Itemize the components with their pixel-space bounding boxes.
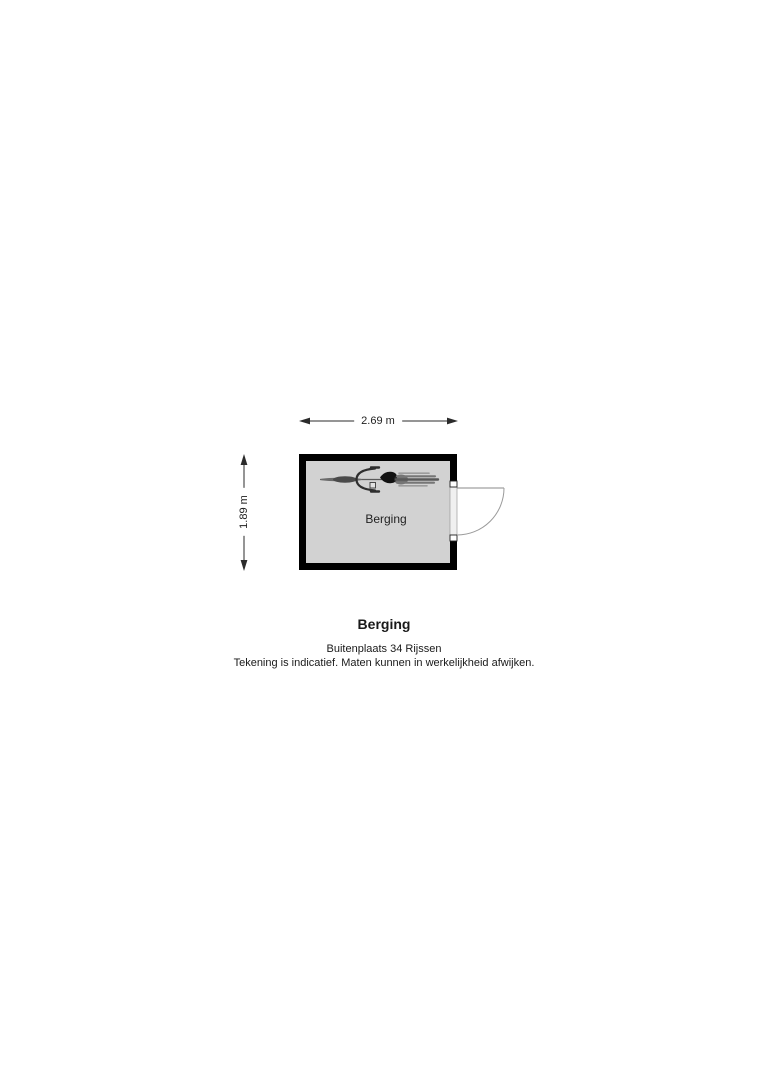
arrow-up-icon [241,454,248,465]
bicycle-pedal [370,483,376,489]
arrow-left-icon [299,418,310,425]
plan-address: Buitenplaats 34 Rijssen [0,642,768,656]
height-dimension-label: 1.89 m [237,488,251,536]
plan-title: Berging [0,616,768,633]
plan-disclaimer: Tekening is indicatief. Maten kunnen in … [0,656,768,670]
door-jamb-top [450,481,457,487]
floorplan-drawing [0,0,768,1086]
floorplan-canvas: 2.69 m 1.89 m Berging Berging Buitenplaa… [0,0,768,1086]
arrow-down-icon [241,560,248,571]
room-name-label: Berging [365,512,406,526]
width-dimension-label: 2.69 m [354,414,402,428]
door-jamb-bottom [450,535,457,541]
door-opening [450,487,457,535]
door-swing-icon [450,481,504,541]
arrow-right-icon [447,418,458,425]
door-arc [457,488,504,535]
